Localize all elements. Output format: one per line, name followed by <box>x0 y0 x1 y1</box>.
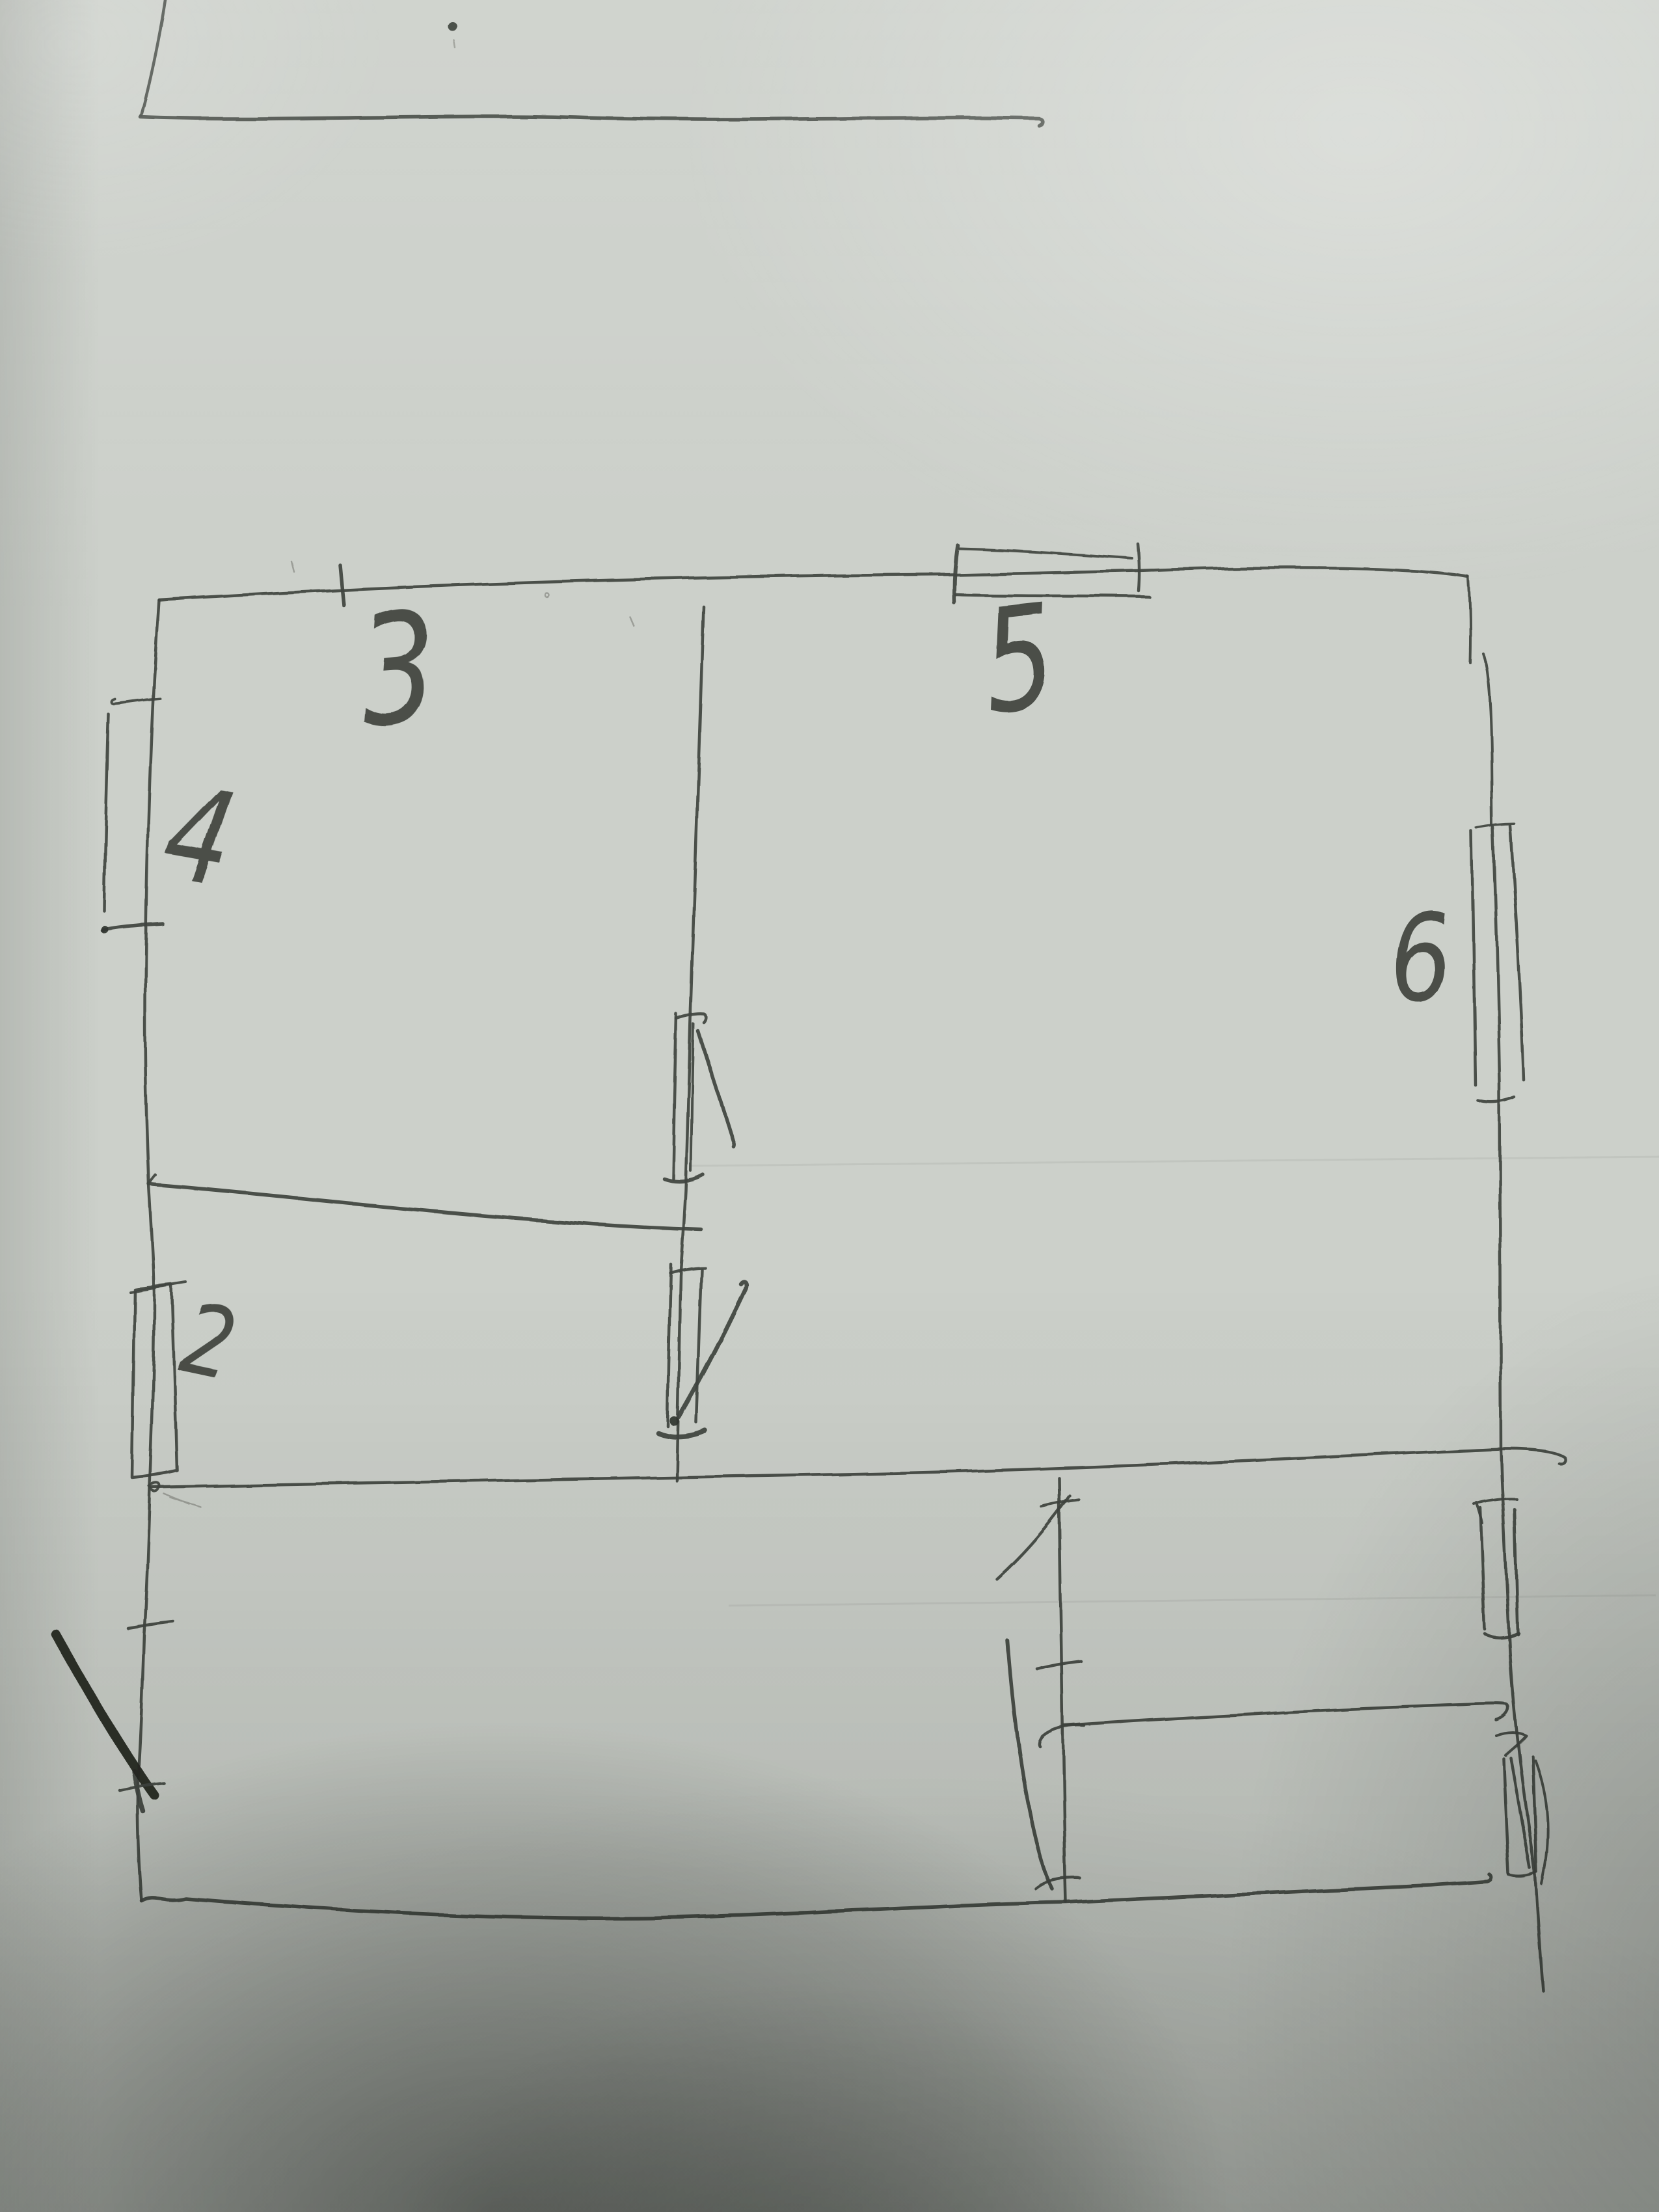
pen-speck <box>291 561 293 571</box>
door-bottom-cap <box>1509 1872 1537 1877</box>
wall-bottom <box>142 1874 1491 1918</box>
door-x-bottom-right <box>1496 1733 1548 1884</box>
pen-speck <box>545 593 549 597</box>
tick-mark <box>1038 1662 1081 1669</box>
wall-right-jog <box>1483 653 1492 825</box>
pen-speck <box>630 617 634 626</box>
tick-hook <box>1039 1725 1084 1746</box>
door-2 <box>658 1264 746 1436</box>
paper-crease <box>690 1157 1659 1166</box>
window-bottom-cap <box>1485 1633 1518 1638</box>
door-swing-arc <box>1008 1641 1053 1889</box>
interior-wall-upper <box>149 1175 701 1230</box>
partial-drawing-top <box>141 0 1042 126</box>
wall-line <box>150 1449 1566 1487</box>
tick-hook <box>1036 1878 1080 1889</box>
small-room-bottom-right <box>997 1478 1509 1902</box>
ink-drawing: 3 4 5 6 2 <box>56 0 1566 1991</box>
window-side-line <box>1481 1508 1485 1630</box>
door-side-line <box>696 1269 701 1422</box>
window-end-cap <box>1138 544 1139 591</box>
door-swing-line <box>679 1281 746 1417</box>
label-3: 3 <box>355 578 442 762</box>
room-divider-vertical <box>1059 1478 1066 1902</box>
wall-right-upper <box>1468 577 1470 662</box>
photo-of-paper-sketch: 3 4 5 6 2 <box>0 0 1659 2212</box>
label-2: 2 <box>172 1282 245 1403</box>
window-end-cap <box>1477 824 1515 828</box>
window-end-cap <box>1478 1098 1515 1103</box>
wall-left <box>138 600 159 1901</box>
paper-creases <box>690 1157 1659 1606</box>
window-side-line <box>1515 1509 1518 1634</box>
label-6: 6 <box>1386 887 1455 1031</box>
door-side-line <box>1504 1759 1509 1874</box>
window-4-left <box>101 699 163 934</box>
pen-blob <box>101 926 109 934</box>
window-end-cap <box>102 924 163 930</box>
pen-blob <box>669 1416 679 1425</box>
door-top-cap <box>670 1267 705 1273</box>
room-labels: 3 4 5 6 2 <box>154 573 1455 1403</box>
door-side-line <box>691 1024 694 1171</box>
partial-rect-bottom-side <box>141 116 1042 126</box>
door-side-line <box>673 1014 677 1179</box>
window-outer-line <box>960 548 1132 558</box>
door-side-line <box>668 1264 671 1426</box>
outer-walls <box>134 565 1543 1991</box>
window-outer-line <box>104 714 109 911</box>
wall-line <box>149 1184 701 1230</box>
window-lower-right <box>1474 1499 1518 1638</box>
label-4: 4 <box>154 756 246 917</box>
wall-top-tick <box>340 565 344 605</box>
hatch-marks <box>164 1494 202 1508</box>
pen-speck <box>454 40 455 48</box>
floor-plan-sketch: 3 4 5 6 2 <box>0 0 1659 2212</box>
door-bottom-cap <box>664 1175 703 1181</box>
label-5: 5 <box>975 573 1063 746</box>
door-bottom-cap <box>658 1431 705 1436</box>
tick-mark <box>128 1621 173 1628</box>
interior-wall-long <box>149 1449 1566 1492</box>
pen-dot <box>448 21 457 31</box>
window-inner-line <box>1472 831 1476 1085</box>
left-wall-marks <box>56 1621 173 1796</box>
door-top-hook <box>1496 1733 1526 1755</box>
door-swing-line <box>698 1031 734 1146</box>
window-outer-line <box>1511 826 1524 1080</box>
partial-rect-left-side <box>141 0 165 116</box>
door-1 <box>664 1014 734 1181</box>
room-divider-horizontal <box>1064 1704 1509 1726</box>
